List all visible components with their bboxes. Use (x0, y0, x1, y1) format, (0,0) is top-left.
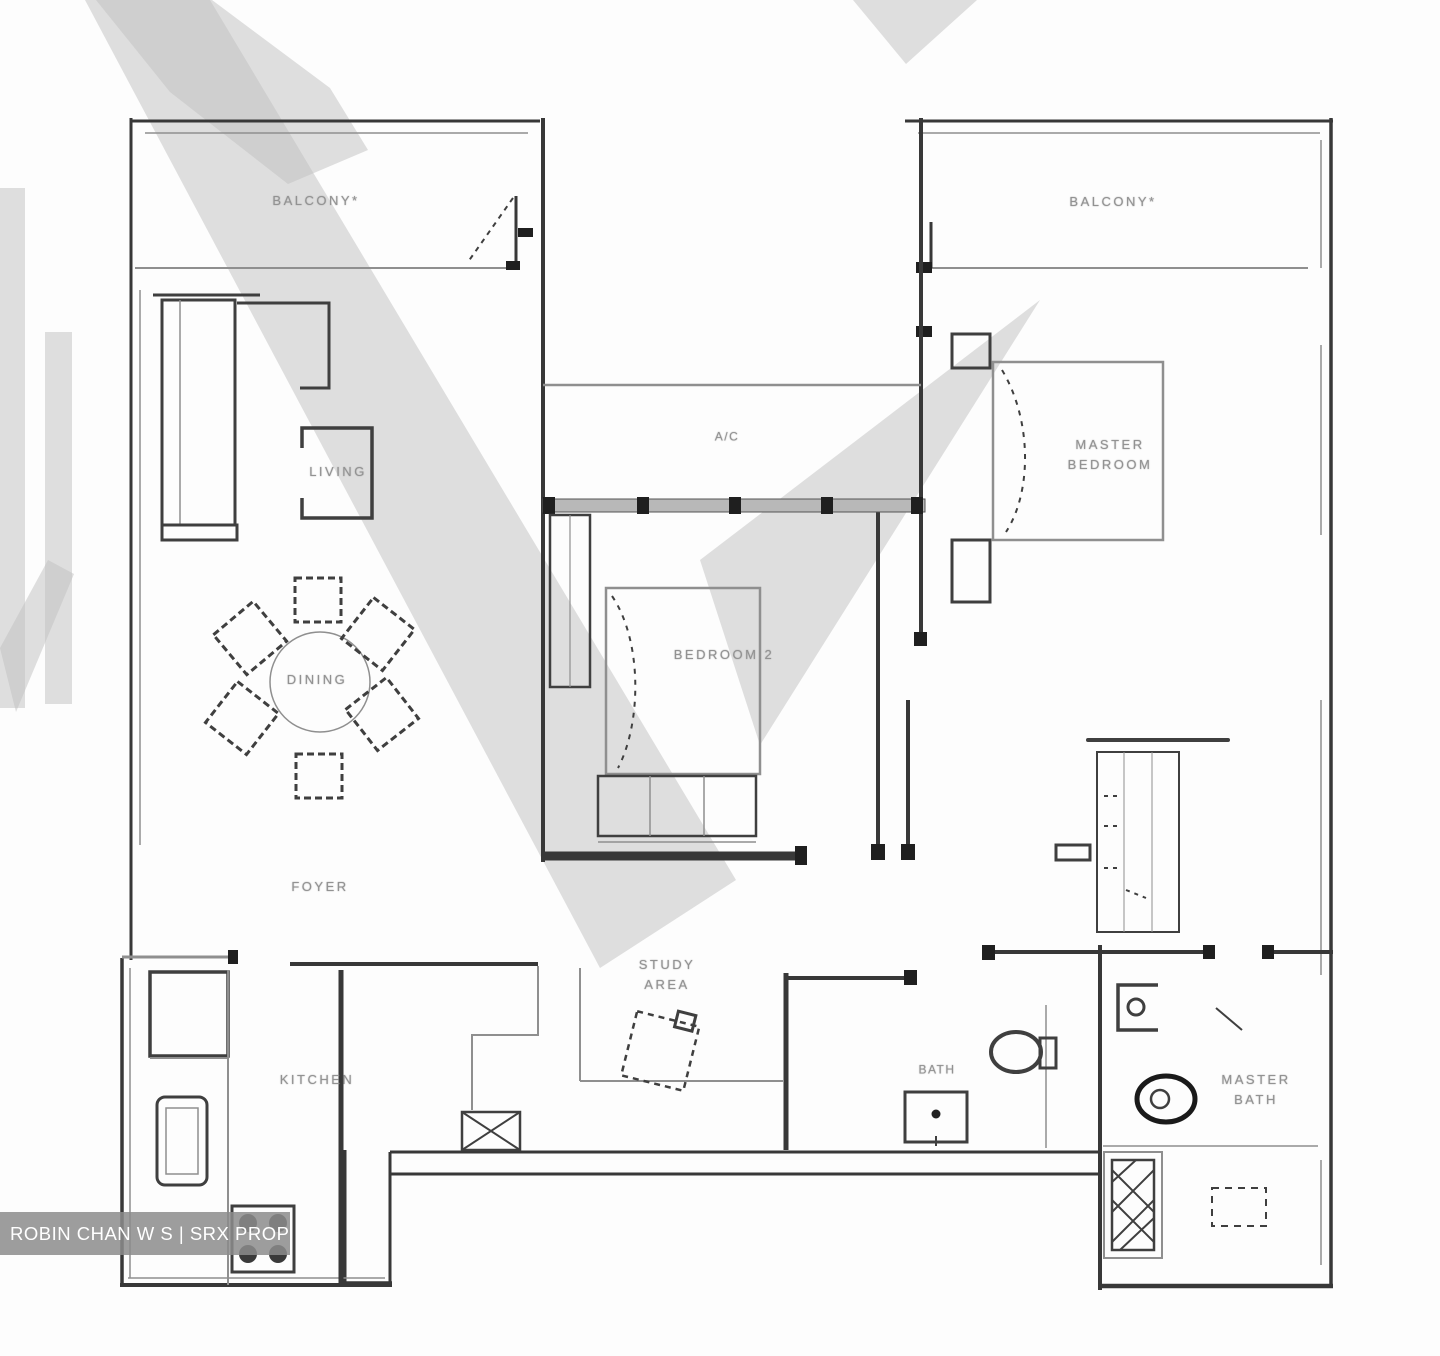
vanity (1212, 1188, 1266, 1226)
master-sink (1118, 985, 1158, 1030)
label-master-bath: MASTER BATH (1191, 1070, 1321, 1110)
label-kitchen: KITCHEN (280, 1070, 355, 1090)
balcony-door-right (916, 222, 932, 337)
label-living: LIVING (309, 462, 367, 482)
label-ac: A/C (715, 428, 740, 447)
study-desk (621, 1011, 699, 1091)
label-study-line1: STUDY (639, 957, 696, 972)
label-bedroom2: BEDROOM 2 (674, 645, 775, 665)
balcony-door-left (468, 196, 533, 270)
sofa-armrest (162, 525, 237, 540)
wardrobe (1097, 752, 1179, 932)
label-foyer: FOYER (291, 877, 348, 897)
label-balcony-left: BALCONY* (272, 191, 359, 211)
label-study-area: STUDY AREA (602, 955, 732, 995)
fridge (150, 972, 228, 1056)
label-study-line2: AREA (644, 977, 689, 992)
dining-chair (295, 578, 341, 622)
bedside-table (952, 540, 990, 602)
ghost-watermark (0, 0, 1040, 968)
master-bedroom-furniture (952, 334, 1228, 932)
bed-cover (1002, 370, 1025, 532)
kitchen-sink (157, 1097, 207, 1185)
dining-chair (213, 601, 286, 674)
sofa (162, 300, 235, 525)
label-master-bedroom-line2: BEDROOM (1068, 457, 1153, 472)
toilet (991, 1032, 1041, 1072)
dining-chair (342, 598, 415, 671)
label-master-bath-line1: MASTER (1221, 1072, 1290, 1087)
floor-plan: BALCONY* BALCONY* LIVING A/C MASTER BEDR… (0, 0, 1440, 1356)
toilet-flush (1151, 1090, 1169, 1108)
label-dining: DINING (287, 670, 348, 690)
label-balcony-right: BALCONY* (1069, 192, 1156, 212)
dining-chair (296, 754, 342, 798)
wall-hook (1056, 845, 1090, 860)
hall-counter (472, 966, 538, 1110)
faucet (932, 1110, 941, 1119)
dining-chair (346, 678, 419, 751)
label-master-bedroom-line1: MASTER (1075, 437, 1144, 452)
label-master-bedroom: MASTER BEDROOM (1045, 435, 1175, 475)
study-chair (675, 1011, 696, 1031)
agent-watermark-bar: ROBIN CHAN W S | SRX PROPERTY (0, 1212, 290, 1255)
faucet (1128, 999, 1144, 1015)
floor-plan-drawing (0, 0, 1440, 1356)
bath-fixtures (905, 1032, 1056, 1146)
master-toilet (1137, 1076, 1195, 1122)
label-master-bath-line2: BATH (1234, 1092, 1278, 1107)
study-furniture (621, 1002, 701, 1091)
label-bath: BATH (918, 1061, 955, 1080)
master-bath-fixtures (1104, 985, 1266, 1258)
dining-chair (206, 682, 279, 755)
